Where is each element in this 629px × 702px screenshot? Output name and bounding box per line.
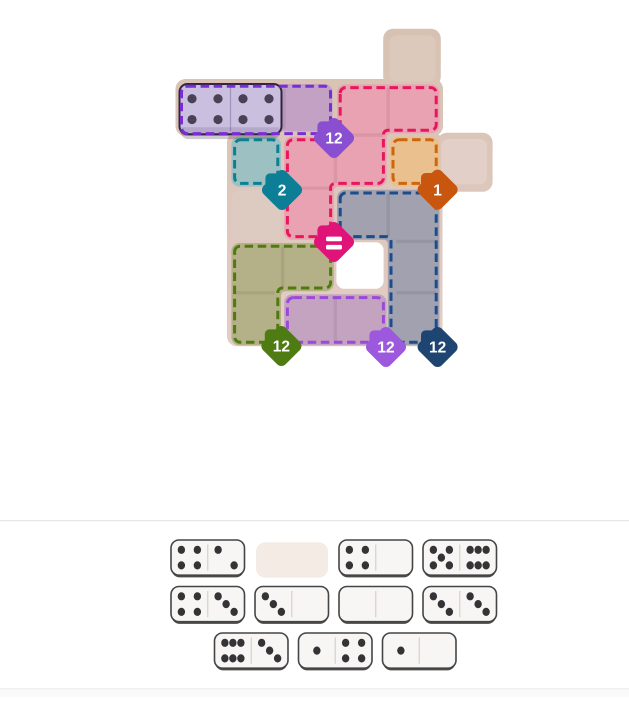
svg-text:12: 12 <box>429 340 446 357</box>
svg-text:12: 12 <box>377 340 394 357</box>
svg-text:12: 12 <box>273 339 290 356</box>
svg-text:2: 2 <box>278 183 287 200</box>
svg-text:12: 12 <box>325 131 342 148</box>
svg-text:1: 1 <box>433 182 442 199</box>
